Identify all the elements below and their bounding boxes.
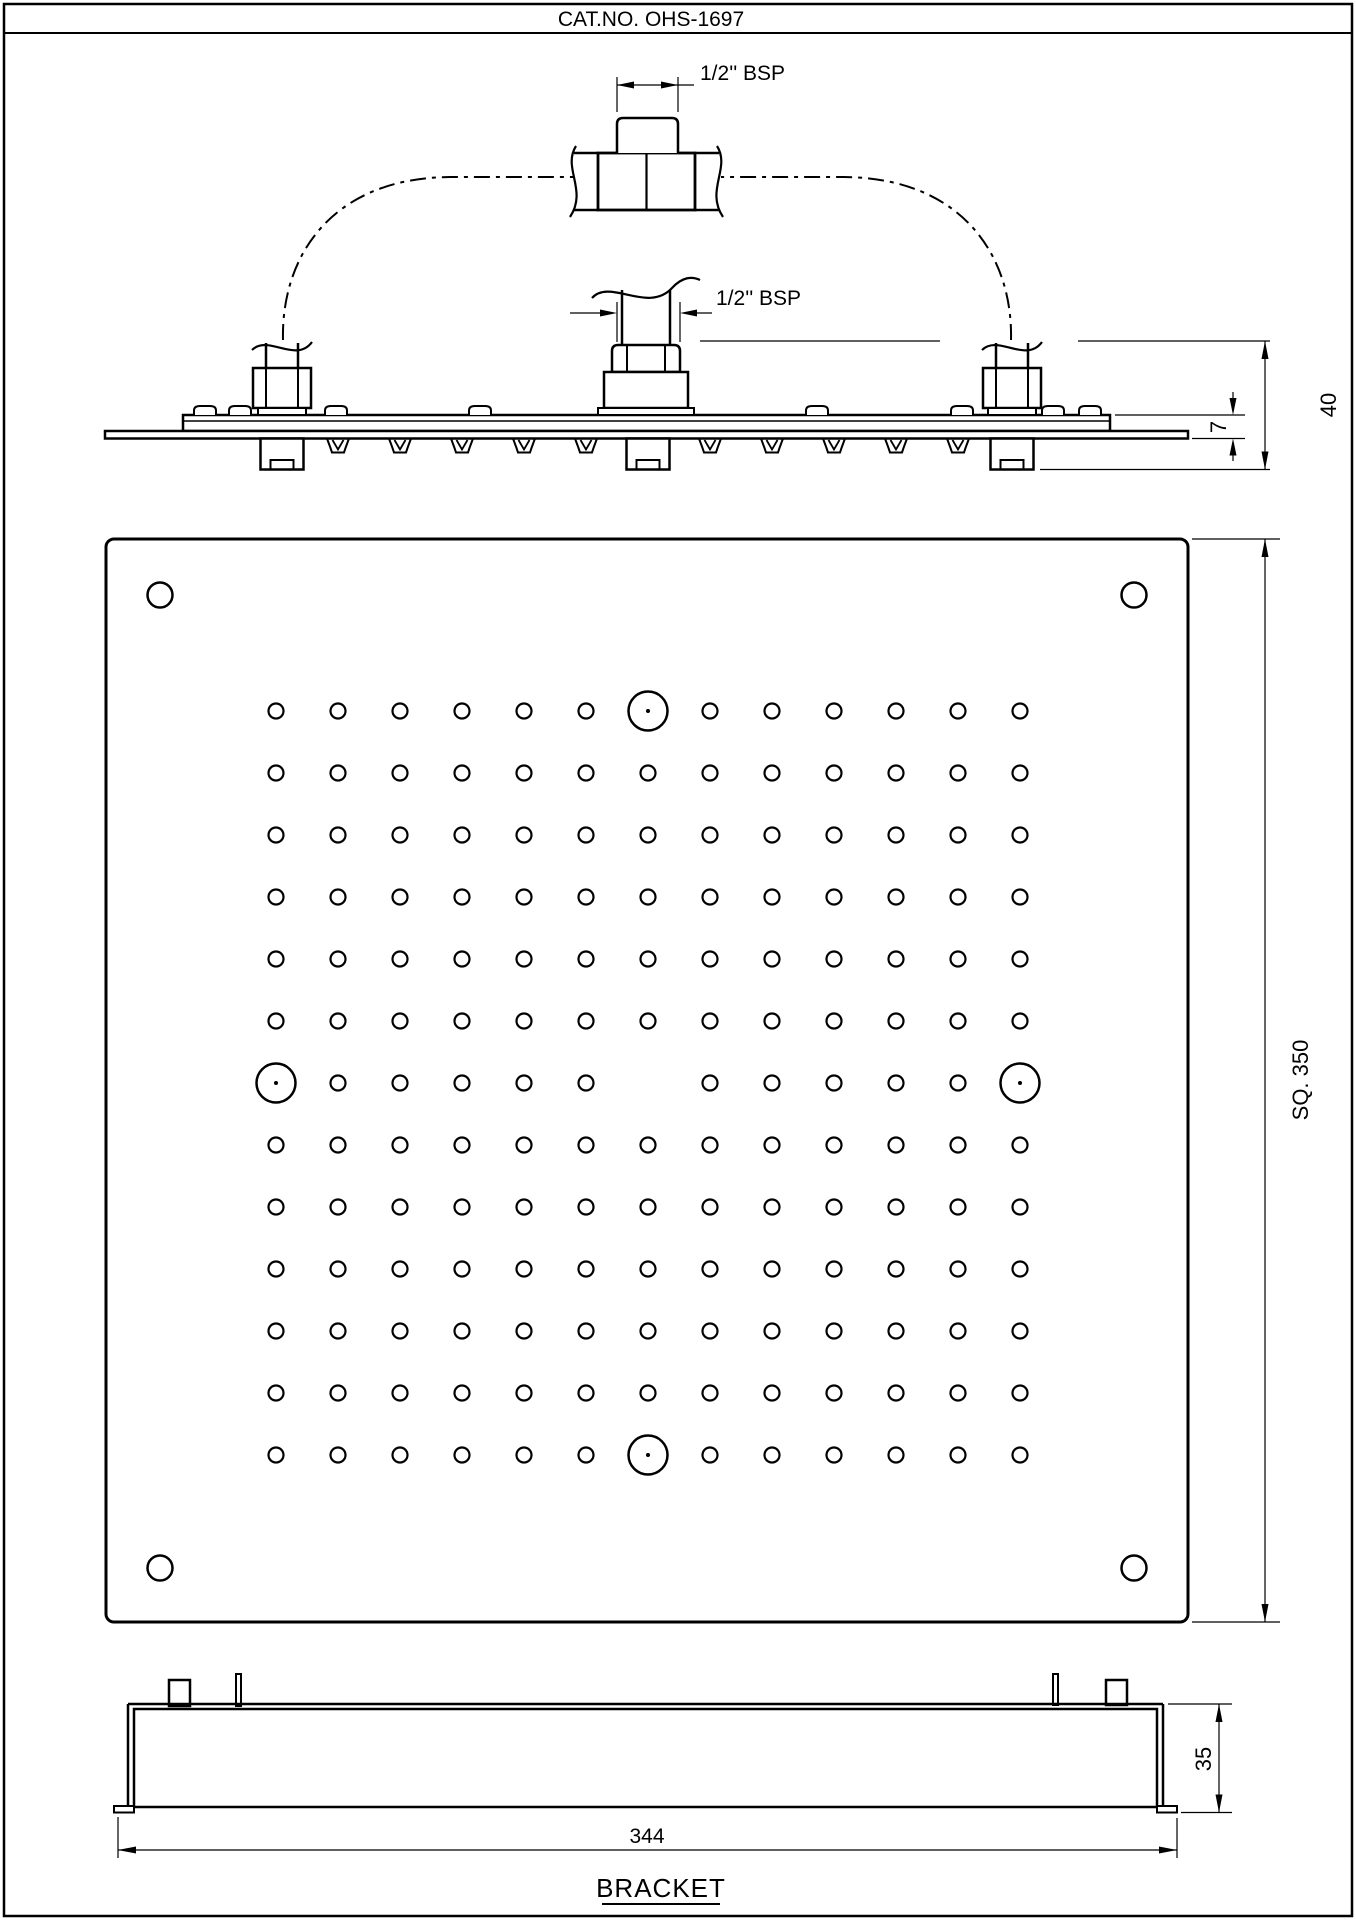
inlet-collar (604, 372, 688, 408)
dim-arrow (600, 310, 617, 317)
tee-fitting: 1/2'' BSP (570, 62, 785, 217)
dim-arrow (661, 82, 678, 89)
dim-arrow (1262, 341, 1269, 359)
bracket-bar (183, 415, 1110, 431)
bracket-caption: BRACKET (596, 1873, 726, 1903)
bracket-pin-right (1053, 1674, 1058, 1705)
dim-40-text: 40 (1316, 393, 1341, 417)
screw-head (469, 406, 491, 415)
dim-arrow (1230, 398, 1237, 415)
dim-arrow (1262, 539, 1269, 557)
dim-arrow (1159, 1847, 1177, 1854)
dim-sq350-text: SQ. 350 (1288, 1040, 1313, 1121)
dim-7-text: 7 (1206, 421, 1231, 433)
screw-head (1079, 406, 1101, 415)
dim-35-text: 35 (1191, 1747, 1216, 1771)
hose-centerline-right (721, 177, 1011, 340)
drawing-sheet: CAT.NO. OHS-1697 (0, 0, 1356, 1920)
hose-connector-left (252, 342, 312, 415)
dim-arrow (1216, 1795, 1223, 1813)
bracket-foot-left (114, 1806, 134, 1813)
bracket-body (134, 1709, 1157, 1807)
hose-connector-right (982, 342, 1042, 415)
lug (261, 439, 304, 470)
dim-plate-offset: 7 (1115, 392, 1245, 461)
centre-inlet: 1/2'' BSP (570, 278, 940, 415)
dim-arrow (617, 82, 634, 89)
bsp-top-label: 1/2'' BSP (700, 62, 785, 85)
plan-view: SQ. 350 (106, 539, 1313, 1622)
bracket-tab-left (169, 1680, 190, 1706)
dim-arrow (680, 310, 697, 317)
bracket-foot-right (1157, 1806, 1177, 1813)
technical-drawing: CAT.NO. OHS-1697 (0, 0, 1356, 1920)
screw-head (1042, 406, 1064, 415)
dim-arrow (1216, 1704, 1223, 1722)
screw-head (951, 406, 973, 415)
pipe-break-symbol (716, 146, 723, 217)
dim-arrow (1262, 452, 1269, 470)
dim-bracket-length: 344 (118, 1817, 1177, 1858)
screw-head (325, 406, 347, 415)
pipe-break-symbol (592, 278, 700, 298)
dim-arrow (1262, 1604, 1269, 1622)
dim-344-text: 344 (629, 1825, 664, 1848)
lug (627, 439, 670, 470)
inlet-nut (612, 345, 680, 372)
bsp-inlet-label: 1/2'' BSP (716, 287, 801, 310)
dim-arrow (1230, 439, 1237, 456)
connector-nut (253, 368, 311, 408)
hose-centerline-left (283, 177, 573, 340)
bracket-pin-left (236, 1674, 241, 1706)
dim-arrow (118, 1847, 136, 1854)
bracket-view: 35 344 BRACKET (114, 1674, 1232, 1904)
tee-thread-boss (617, 118, 678, 153)
bracket-tab-right (1106, 1680, 1127, 1705)
lug (991, 439, 1034, 470)
mounting-lugs (261, 439, 1034, 470)
dim-square: SQ. 350 (1192, 539, 1313, 1622)
pipe-break-symbol (252, 342, 312, 350)
screw-head (806, 406, 828, 415)
pipe-break-symbol (570, 146, 577, 217)
screw-head (194, 406, 216, 415)
screw-head (229, 406, 251, 415)
pipe-break-symbol (982, 342, 1042, 350)
side-view: 1/2'' BSP 1/2'' BSP (105, 62, 1341, 470)
connector-nut (983, 368, 1041, 408)
sheet-title: CAT.NO. OHS-1697 (558, 8, 744, 31)
dim-bracket-height: 35 (1168, 1704, 1232, 1813)
